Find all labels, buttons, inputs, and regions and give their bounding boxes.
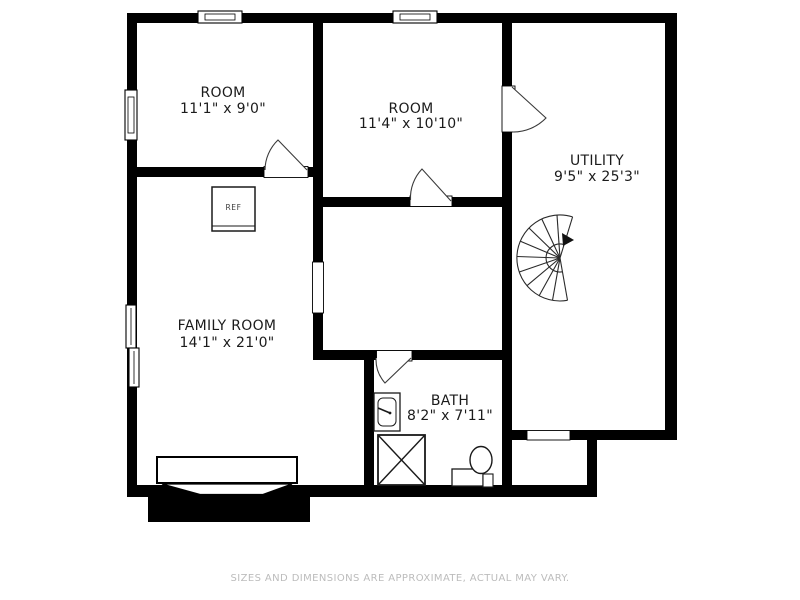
stair-arrow-icon (562, 233, 574, 246)
wall-segment (313, 350, 512, 360)
door-arc-icon (376, 358, 411, 383)
wall-segment (512, 430, 527, 440)
refrigerator-icon: REF (212, 187, 255, 231)
room-labels: ROOM 11'1" x 9'0" ROOM 11'4" x 10'10" UT… (178, 85, 640, 424)
room-dimensions: 11'1" x 9'0" (180, 101, 266, 117)
window-icon (393, 11, 437, 23)
room-label: BATH (431, 393, 469, 409)
refrigerator-label: REF (225, 203, 241, 212)
floor-plan-page: REF ROOM 11'1" x 9'0" ROOM 11'4" x 10'10… (0, 0, 800, 600)
room-label: ROOM (200, 85, 245, 101)
door-arc-icon (512, 87, 546, 132)
wall-segment (570, 430, 677, 440)
window-icon (129, 348, 139, 387)
wall-openings (264, 86, 570, 440)
room-dimensions: 9'5" x 25'3" (554, 169, 640, 185)
floor-plan-svg: REF ROOM 11'1" x 9'0" ROOM 11'4" x 10'10… (0, 0, 800, 600)
door-arc-icon (410, 169, 451, 201)
window-icon (126, 305, 136, 348)
room-dimensions: 8'2" x 7'11" (407, 408, 493, 424)
door-arc-icon (265, 140, 307, 170)
footer-disclaimer: SIZES AND DIMENSIONS ARE APPROXIMATE, AC… (231, 573, 570, 584)
window-icon (125, 90, 137, 140)
room-label: UTILITY (570, 153, 624, 169)
window-icon (198, 11, 242, 23)
room-dimensions: 11'4" x 10'10" (359, 116, 463, 132)
opening (527, 431, 570, 441)
wall-segment (364, 350, 374, 497)
shower-icon (378, 435, 425, 485)
room-label: FAMILY ROOM (178, 318, 277, 334)
wall-segment (587, 440, 597, 490)
wall-segment (665, 13, 677, 440)
sink-icon (374, 393, 400, 431)
toilet-icon (452, 447, 493, 488)
spiral-staircase-icon (517, 215, 574, 301)
room-dimensions: 14'1" x 21'0" (179, 335, 274, 351)
opening (313, 262, 324, 313)
fireplace-icon (157, 457, 297, 495)
wall-segment (127, 13, 137, 497)
room-label: ROOM (388, 101, 433, 117)
